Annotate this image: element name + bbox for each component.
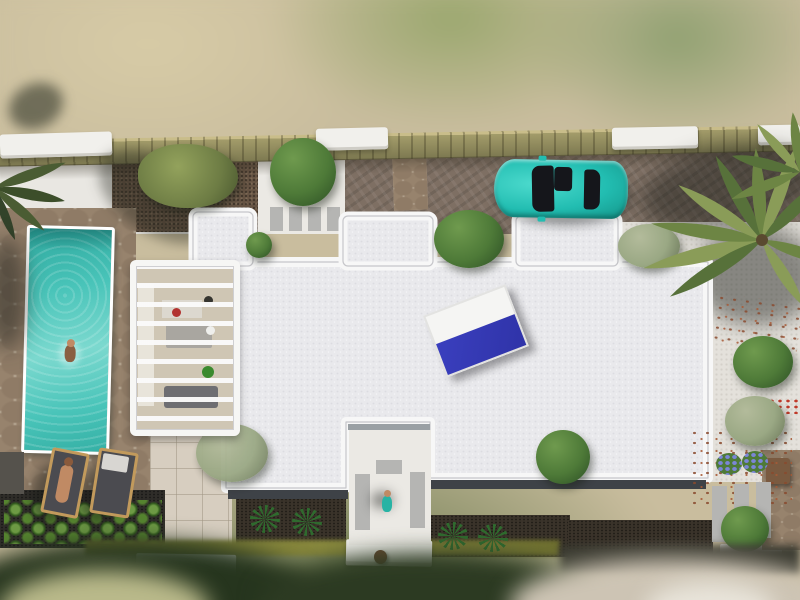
aerial-villa-render bbox=[0, 0, 800, 600]
left-edge-kerb bbox=[0, 452, 24, 494]
palm-fronds-left-edge bbox=[0, 158, 68, 242]
palm-trees bbox=[0, 0, 800, 600]
